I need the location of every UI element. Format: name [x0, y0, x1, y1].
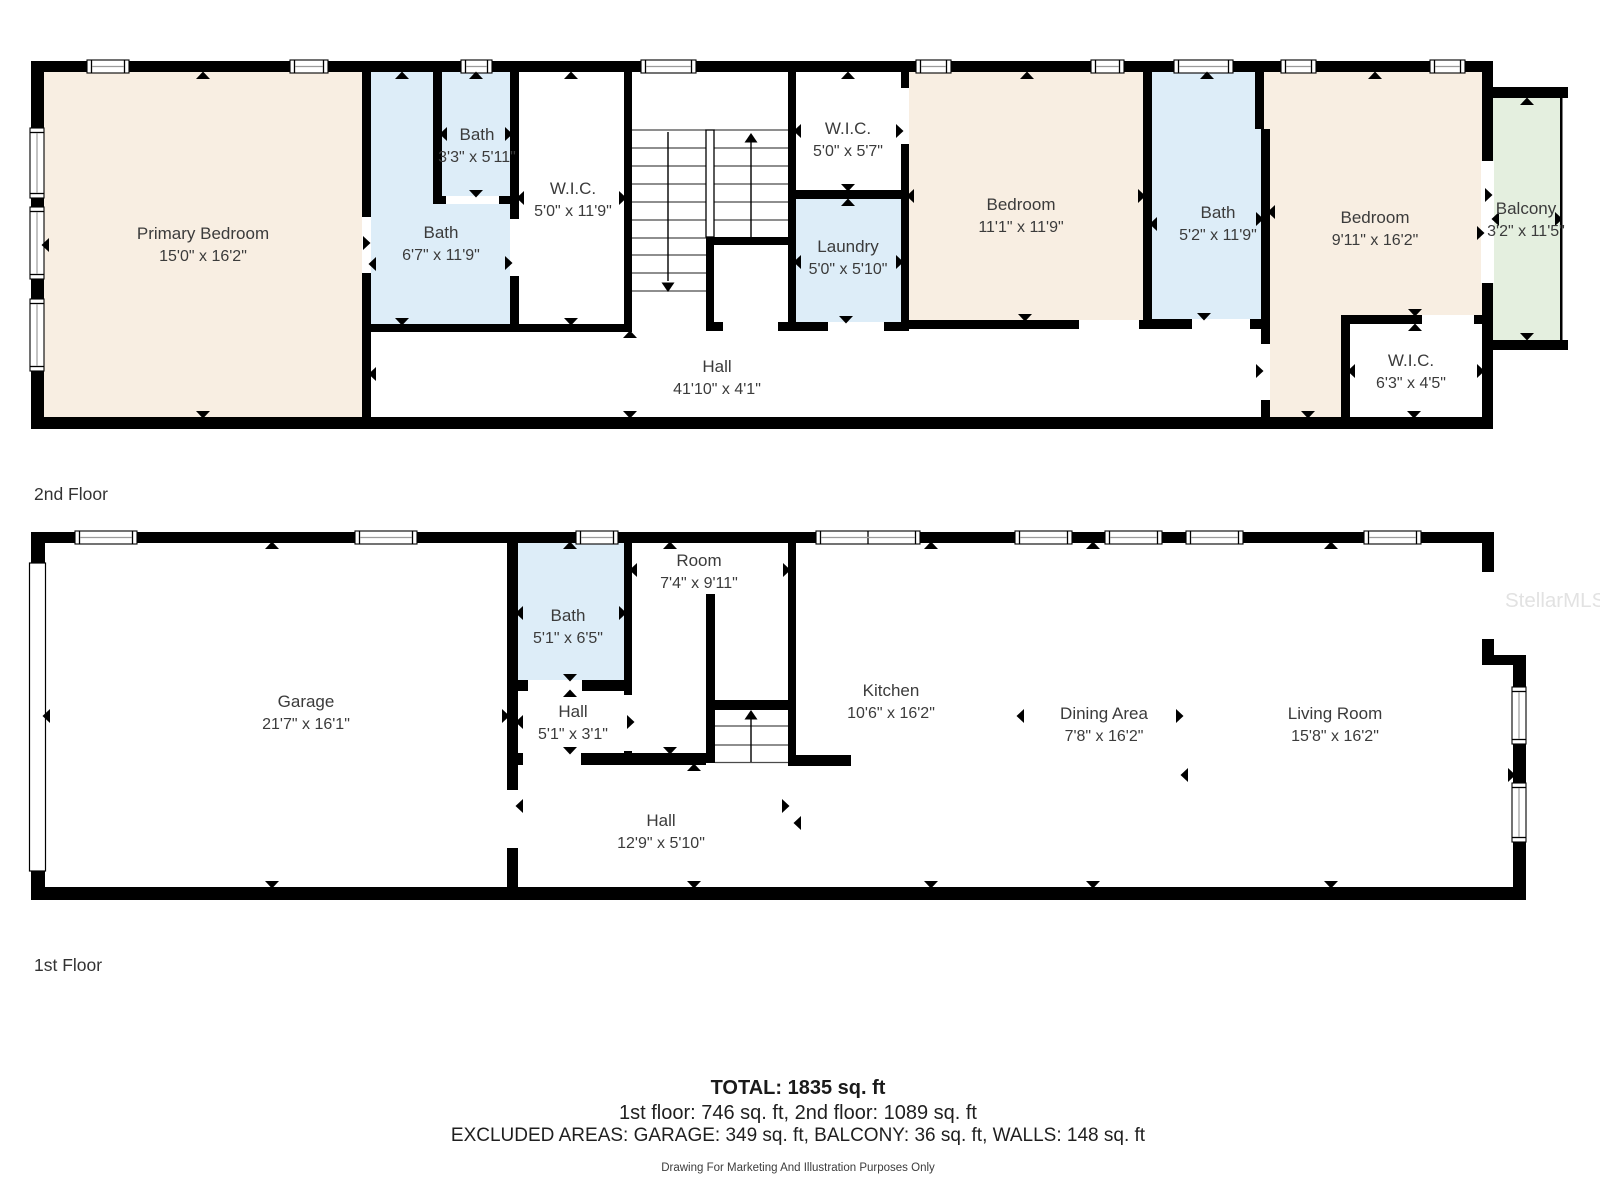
- svg-text:15'0" x 16'2": 15'0" x 16'2": [159, 248, 247, 265]
- svg-text:Bath: Bath: [424, 223, 459, 242]
- svg-text:Balcony: Balcony: [1496, 199, 1557, 218]
- svg-text:7'4" x 9'11": 7'4" x 9'11": [660, 575, 738, 592]
- svg-text:Bedroom: Bedroom: [1341, 208, 1410, 227]
- svg-text:10'6" x 16'2": 10'6" x 16'2": [847, 705, 935, 722]
- svg-text:Room: Room: [676, 551, 721, 570]
- svg-text:5'0" x 5'10": 5'0" x 5'10": [809, 261, 888, 278]
- svg-text:15'8" x 16'2": 15'8" x 16'2": [1291, 728, 1379, 745]
- svg-text:Hall: Hall: [558, 702, 587, 721]
- svg-text:Bedroom: Bedroom: [987, 195, 1056, 214]
- svg-text:EXCLUDED AREAS: GARAGE: 349 sq: EXCLUDED AREAS: GARAGE: 349 sq. ft, BALC…: [451, 1125, 1146, 1146]
- svg-text:Garage: Garage: [278, 692, 335, 711]
- svg-text:Bath: Bath: [1201, 203, 1236, 222]
- svg-text:StellarMLS: StellarMLS: [1505, 589, 1600, 612]
- svg-text:Kitchen: Kitchen: [863, 681, 920, 700]
- svg-text:6'3" x 4'5": 6'3" x 4'5": [1376, 375, 1446, 392]
- svg-text:1st Floor: 1st Floor: [34, 955, 102, 975]
- svg-text:TOTAL: 1835 sq. ft: TOTAL: 1835 sq. ft: [711, 1077, 886, 1099]
- svg-text:21'7" x 16'1": 21'7" x 16'1": [262, 716, 350, 733]
- svg-text:Dining Area: Dining Area: [1060, 704, 1148, 723]
- svg-text:Hall: Hall: [646, 811, 675, 830]
- svg-text:Primary Bedroom: Primary Bedroom: [137, 224, 269, 243]
- svg-text:5'0" x 5'7": 5'0" x 5'7": [813, 143, 883, 160]
- svg-text:11'1" x 11'9": 11'1" x 11'9": [978, 219, 1063, 236]
- svg-text:5'1" x 3'1": 5'1" x 3'1": [538, 726, 608, 743]
- svg-text:2nd Floor: 2nd Floor: [34, 484, 108, 504]
- svg-text:W.I.C.: W.I.C.: [825, 119, 871, 138]
- svg-text:5'0" x 11'9": 5'0" x 11'9": [534, 203, 612, 220]
- svg-text:W.I.C.: W.I.C.: [550, 179, 596, 198]
- svg-text:1st floor: 746 sq. ft, 2nd flo: 1st floor: 746 sq. ft, 2nd floor: 1089 s…: [619, 1102, 977, 1124]
- svg-text:W.I.C.: W.I.C.: [1388, 351, 1434, 370]
- svg-text:6'7" x 11'9": 6'7" x 11'9": [402, 247, 480, 264]
- svg-text:3'2" x 11'5": 3'2" x 11'5": [1487, 223, 1565, 240]
- svg-text:9'11" x 16'2": 9'11" x 16'2": [1332, 232, 1419, 249]
- svg-text:Bath: Bath: [460, 125, 495, 144]
- svg-text:41'10" x 4'1": 41'10" x 4'1": [673, 381, 761, 398]
- svg-text:5'2" x 11'9": 5'2" x 11'9": [1179, 227, 1257, 244]
- svg-text:Drawing For Marketing And Illu: Drawing For Marketing And Illustration P…: [661, 1162, 935, 1174]
- svg-text:7'8" x 16'2": 7'8" x 16'2": [1065, 728, 1144, 745]
- svg-text:5'1" x 6'5": 5'1" x 6'5": [533, 630, 603, 647]
- svg-text:Living Room: Living Room: [1288, 704, 1383, 723]
- svg-text:Laundry: Laundry: [817, 237, 879, 256]
- svg-text:12'9" x 5'10": 12'9" x 5'10": [617, 835, 705, 852]
- svg-text:Hall: Hall: [702, 357, 731, 376]
- svg-text:Bath: Bath: [551, 606, 586, 625]
- svg-text:3'3" x 5'11": 3'3" x 5'11": [438, 149, 516, 166]
